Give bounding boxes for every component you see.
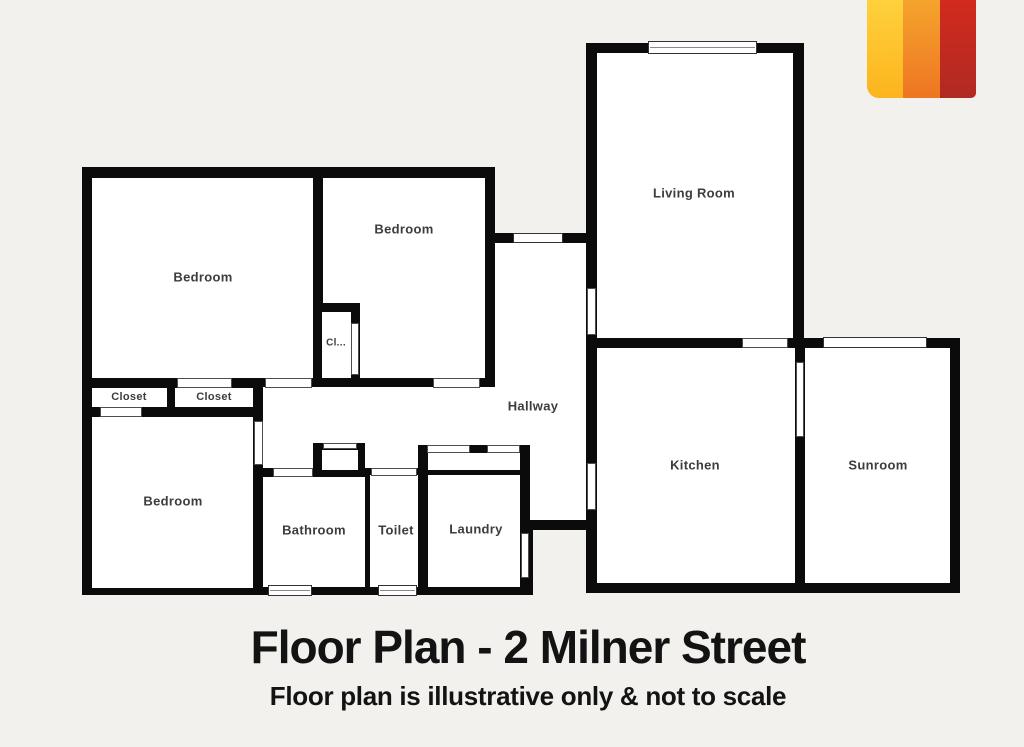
logo-stripe-yellow xyxy=(867,0,903,98)
floorplan-title: Floor Plan - 2 Milner Street xyxy=(251,624,806,670)
door-bedroom-nw-closet xyxy=(177,378,232,388)
logo-stripe-red xyxy=(940,0,976,98)
room-label-hallway: Hallway xyxy=(508,399,559,414)
room-label-living-room: Living Room xyxy=(653,186,735,201)
door-hallway-living xyxy=(587,288,596,335)
window-hallway xyxy=(513,233,563,243)
room-label-kitchen: Kitchen xyxy=(670,458,720,473)
window-sunroom xyxy=(823,337,927,348)
floor-hallway-lower xyxy=(263,387,586,445)
door-bedroom-sw xyxy=(254,421,263,465)
door-living-kitchen xyxy=(742,338,788,348)
floor-hallway-bath-approach xyxy=(263,445,313,468)
window-living-room xyxy=(648,41,757,54)
room-label-bedroom: Bedroom xyxy=(143,494,202,509)
room-label-cl-: Cl... xyxy=(326,338,346,349)
door-bathroom xyxy=(273,468,313,477)
room-label-bedroom: Bedroom xyxy=(374,222,433,237)
opening-bathroom-niche-top xyxy=(323,443,357,449)
door-laundry-niche-e xyxy=(487,445,520,453)
floor-laundry-niche xyxy=(428,453,520,470)
room-label-bedroom: Bedroom xyxy=(173,270,232,285)
room-label-bathroom: Bathroom xyxy=(282,523,346,538)
door-closet-bedroom-n xyxy=(351,323,359,375)
door-bedroom-nw-hall xyxy=(265,378,312,388)
room-label-laundry: Laundry xyxy=(449,522,502,537)
floor-hallway-toilet-approach xyxy=(365,445,418,468)
door-laundry xyxy=(521,533,529,578)
floor-hallway-kitchen-approach xyxy=(530,445,586,520)
logo-stripe-orange xyxy=(903,0,939,98)
window-toilet xyxy=(378,585,417,596)
window-bathroom xyxy=(268,585,312,596)
page: BedroomBedroomCl...ClosetClosetBedroomHa… xyxy=(0,0,1024,747)
room-label-closet: Closet xyxy=(196,391,231,403)
floor-hallway-upper xyxy=(495,243,586,387)
room-label-sunroom: Sunroom xyxy=(848,458,907,473)
door-toilet xyxy=(371,468,417,476)
door-kitchen-sunroom xyxy=(796,362,804,437)
brand-logo xyxy=(867,0,976,98)
floor-bathroom-niche xyxy=(322,450,358,470)
room-label-toilet: Toilet xyxy=(378,523,414,538)
floorplan-disclaimer: Floor plan is illustrative only & not to… xyxy=(270,682,786,711)
door-closet-w-bedroom-sw xyxy=(100,407,142,417)
door-laundry-niche-w xyxy=(427,445,470,453)
door-hallway-kitchen xyxy=(587,463,596,510)
door-bedroom-n-hall xyxy=(433,378,480,388)
room-label-closet: Closet xyxy=(111,391,146,403)
